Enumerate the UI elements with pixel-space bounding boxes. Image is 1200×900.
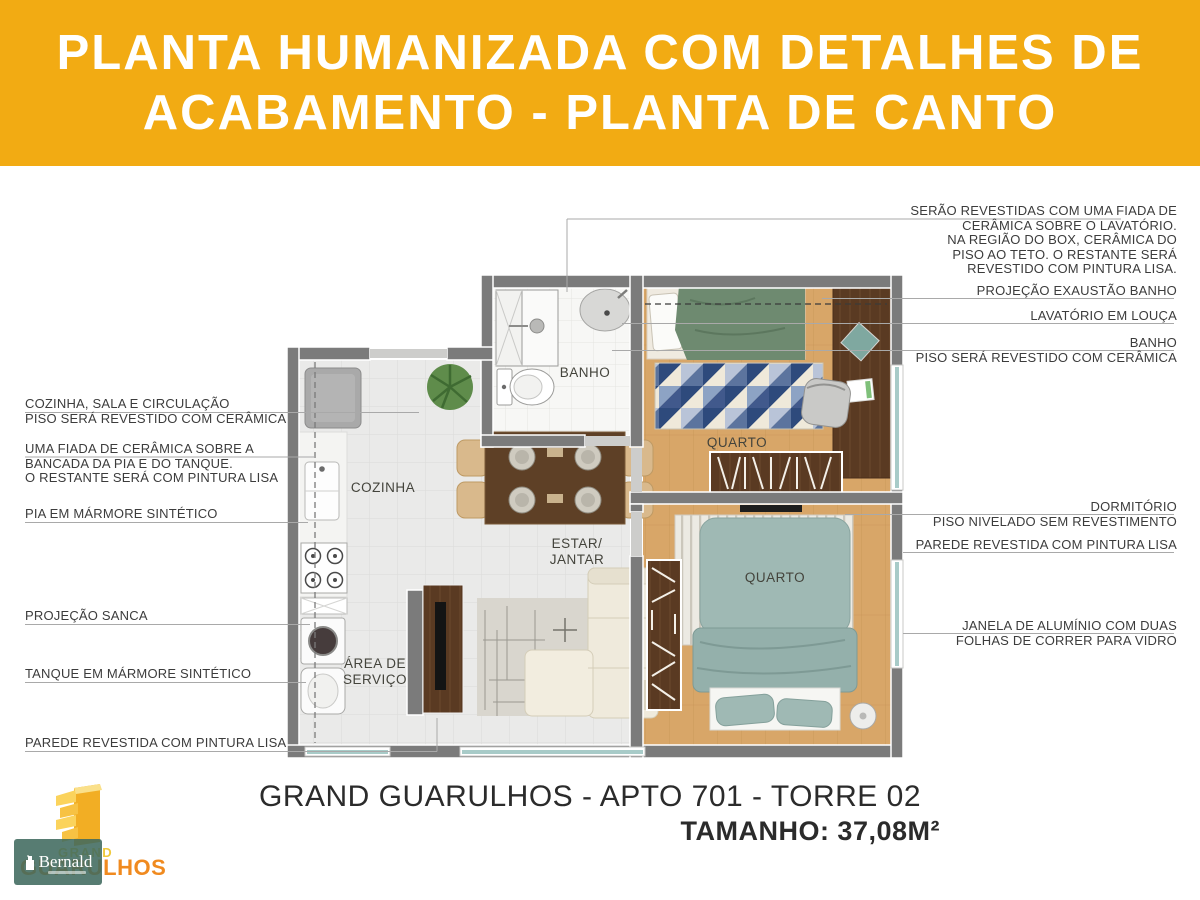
quarto1-door <box>631 448 642 492</box>
shower-box <box>496 290 558 366</box>
floor-plan: BANHO QUARTO COZINHA ESTAR/ JANTAR ÁREA … <box>285 210 905 760</box>
room-label-banho: BANHO <box>560 365 611 380</box>
bernald-watermark-text: Bernald <box>39 852 93 872</box>
annotation-janela: JANELA DE ALUMÍNIO COM DUAS FOLHAS DE CO… <box>956 619 1177 648</box>
annotation-pia: PIA EM MÁRMORE SINTÉTICO <box>25 507 218 522</box>
wardrobe-quarto2 <box>647 560 681 710</box>
apartment-title: GRAND GUARULHOS - APTO 701 - TORRE 02 <box>240 780 940 814</box>
kitchen-fridge <box>305 368 361 428</box>
title-line1: PLANTA HUMANIZADA COM DETALHES DE <box>57 23 1144 83</box>
apartment-size: TAMANHO: 37,08M² <box>240 816 940 847</box>
room-label-area-1: ÁREA DE <box>344 656 406 671</box>
washing-machine <box>301 618 345 664</box>
annotation-tanque: TANQUE EM MÁRMORE SINTÉTICO <box>25 667 251 682</box>
room-label-estar-1: ESTAR/ <box>552 536 603 551</box>
laundry-tank <box>301 668 345 714</box>
annotation-lavatorio: LAVATÓRIO EM LOUÇA <box>1030 309 1177 324</box>
side-table-quarto2 <box>850 703 876 729</box>
bernald-building-icon <box>24 854 36 870</box>
banho-door <box>585 436 630 446</box>
annotation-cozinha-piso: COZINHA, SALA E CIRCULAÇÃO PISO SERÁ REV… <box>25 397 286 426</box>
page: { "header": { "line1": "PLANTA HUMANIZAD… <box>0 0 1200 900</box>
annotation-fiada-ceramica: UMA FIADA DE CERÂMICA SOBRE A BANCADA DA… <box>25 442 278 486</box>
wardrobe-quarto1 <box>710 452 842 494</box>
annotation-revestimento-banho: SERÃO REVESTIDAS COM UMA FIADA DE CERÂMI… <box>910 204 1177 277</box>
annotation-parede-pintura-right: PAREDE REVESTIDA COM PINTURA LISA <box>916 538 1177 553</box>
room-label-quarto1: QUARTO <box>707 435 767 450</box>
bernald-watermark: Bernald <box>14 839 102 885</box>
room-label-estar-2: JANTAR <box>550 552 605 567</box>
bernald-watermark-subtext <box>48 871 86 874</box>
bed-quarto1 <box>647 286 805 360</box>
annotation-dormitorio: DORMITÓRIO PISO NIVELADO SEM REVESTIMENT… <box>933 500 1177 529</box>
title-banner: PLANTA HUMANIZADA COM DETALHES DE ACABAM… <box>0 0 1200 166</box>
tv-quarto2 <box>740 505 802 512</box>
bathroom-sink <box>580 289 630 331</box>
annotation-banho-piso: BANHO PISO SERÁ REVESTIDO COM CERÂMICA <box>916 336 1177 365</box>
chair-quarto1 <box>800 377 852 429</box>
plant <box>427 364 473 410</box>
rug-quarto1 <box>655 363 823 429</box>
entry-door <box>370 349 447 358</box>
room-label-area-2: SERVIÇO <box>343 672 407 687</box>
stove <box>301 543 347 593</box>
bed-quarto2 <box>693 518 857 730</box>
annotation-sanca: PROJEÇÃO SANCA <box>25 609 148 624</box>
tv-rack <box>407 585 463 715</box>
title-line2: ACABAMENTO - PLANTA DE CANTO <box>143 83 1057 143</box>
annotation-parede-pintura-left: PAREDE REVESTIDA COM PINTURA LISA <box>25 736 286 751</box>
room-label-cozinha: COZINHA <box>351 480 415 495</box>
annotation-exaustao: PROJEÇÃO EXAUSTÃO BANHO <box>977 284 1177 299</box>
room-label-quarto2: QUARTO <box>745 570 805 585</box>
toilet <box>497 369 554 405</box>
cabinet <box>301 598 347 614</box>
quarto2-door <box>631 512 642 556</box>
